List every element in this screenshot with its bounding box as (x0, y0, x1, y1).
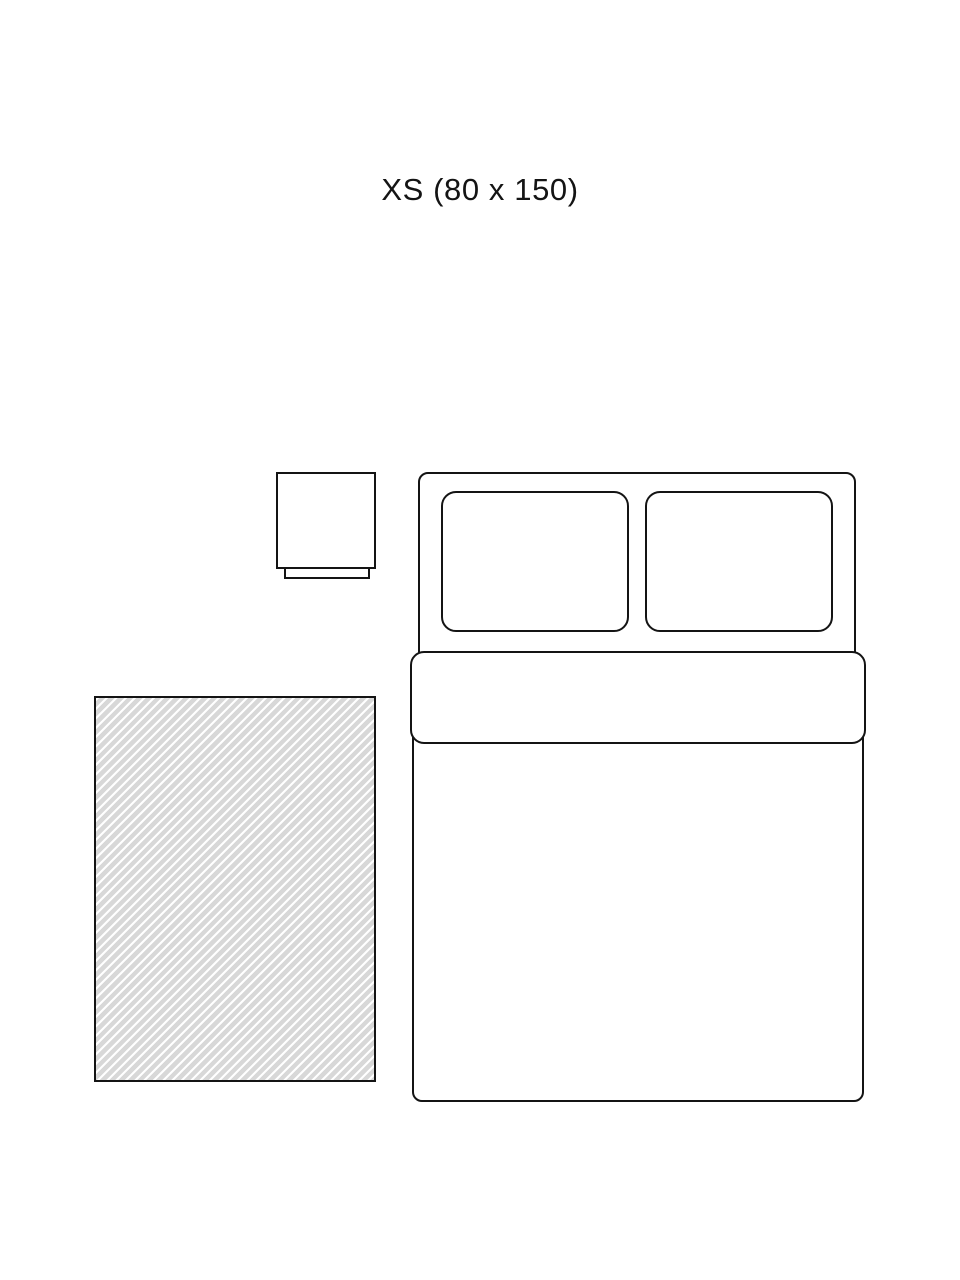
nightstand-base (284, 569, 370, 579)
bed-mattress (412, 690, 864, 1102)
pillow-left (441, 491, 629, 632)
duvet-fold (410, 651, 866, 744)
pillow-right (645, 491, 833, 632)
rug-size-guide-diagram: XS (80 x 150) (0, 0, 960, 1280)
nightstand (276, 472, 376, 569)
size-title: XS (80 x 150) (0, 172, 960, 208)
rug (94, 696, 376, 1082)
